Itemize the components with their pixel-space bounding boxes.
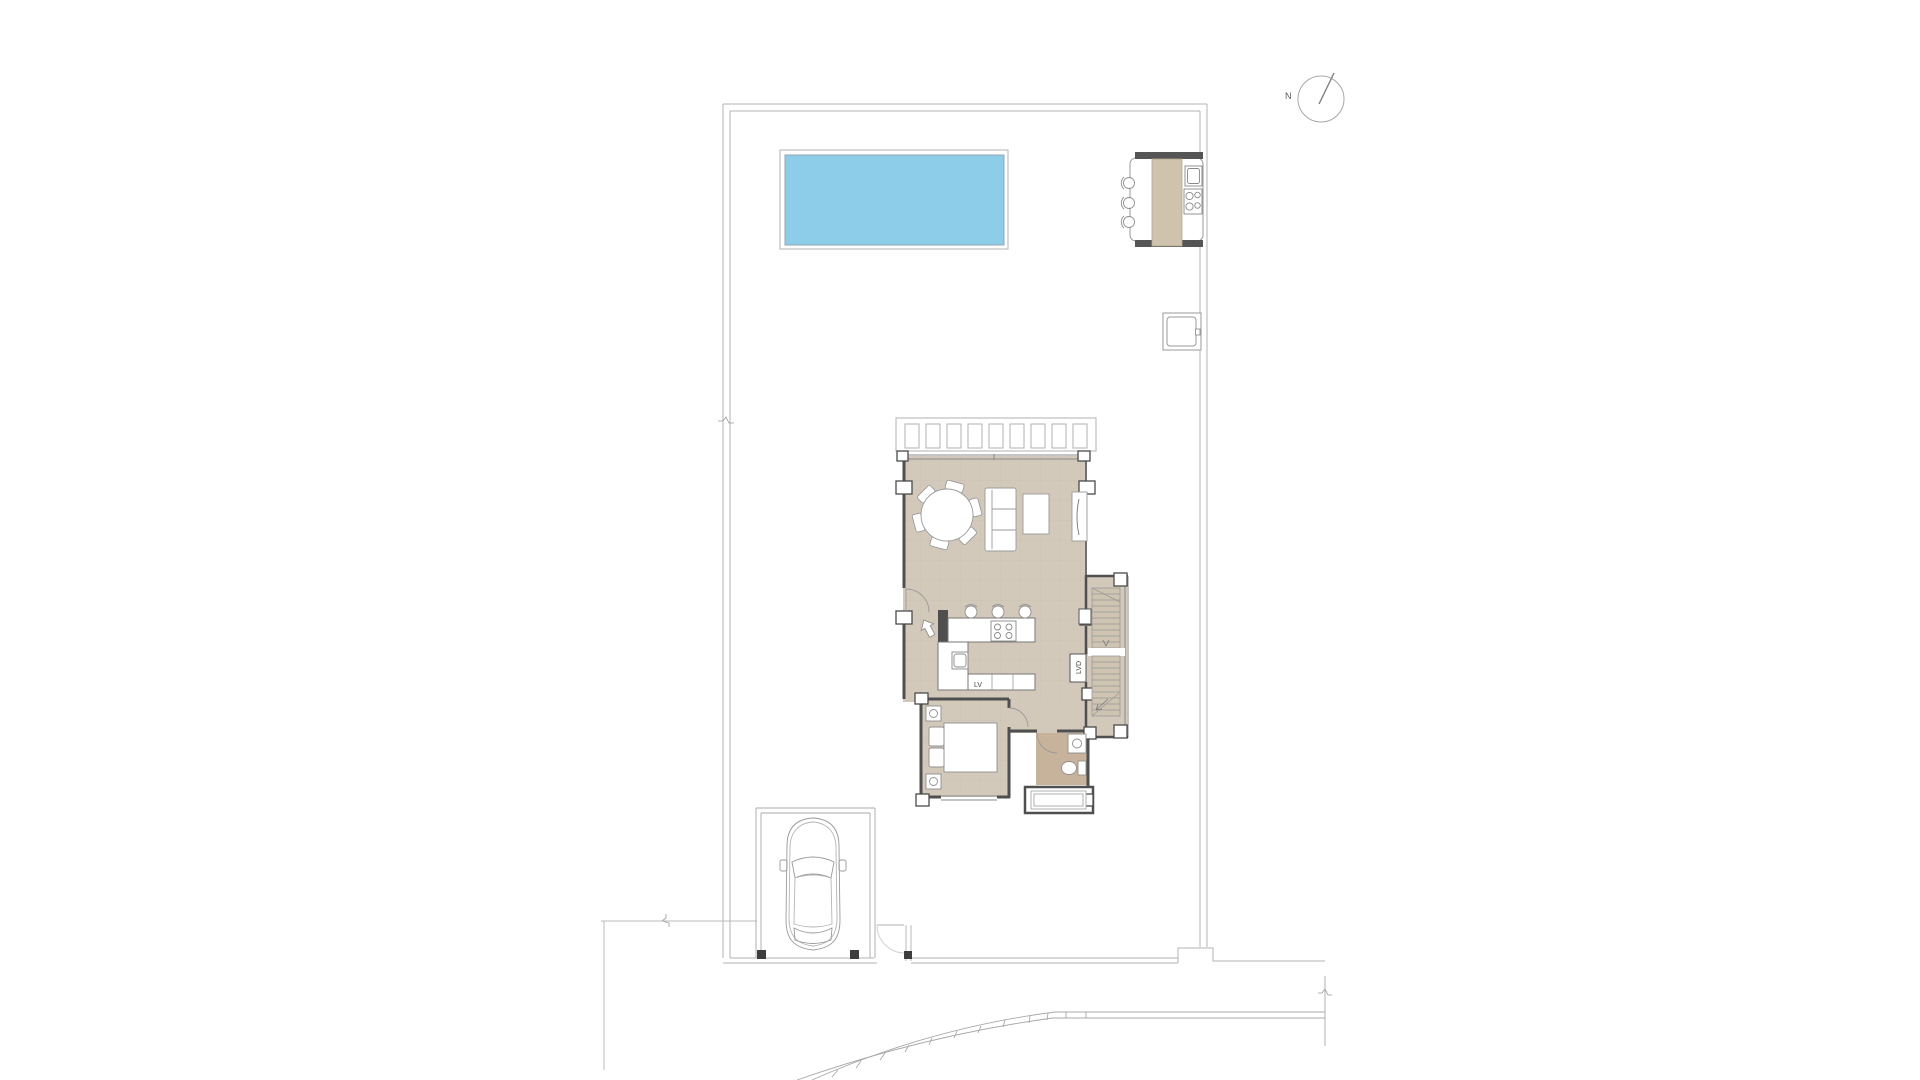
- bbq-stool-icons: [1121, 177, 1134, 228]
- gate-post: [904, 951, 912, 959]
- outdoor-kitchen: [1121, 152, 1203, 247]
- kitchen-wall-stub: [938, 610, 948, 642]
- sofa-icon: [985, 488, 1016, 551]
- outdoor-sink-icon: [1185, 166, 1202, 186]
- north-arrow-compass-icon: N: [1285, 73, 1344, 122]
- outdoor-counter: [1152, 159, 1182, 246]
- road-curb: [797, 976, 1325, 1080]
- dishwasher-label: LV: [974, 682, 982, 689]
- outdoor-kitchen-wall-top: [1135, 152, 1203, 159]
- stair-flight-upper: [1092, 588, 1120, 648]
- compass-north-label: N: [1285, 91, 1292, 101]
- duct-box: [1079, 609, 1091, 624]
- car-icon: [780, 818, 846, 950]
- pedestrian-gate: [877, 925, 912, 961]
- site-reference-lines: [601, 921, 757, 1070]
- pergola: [896, 418, 1096, 451]
- pergola-slats: [905, 424, 1087, 448]
- washer: LVD: [1070, 654, 1086, 682]
- dishwasher: LV: [968, 674, 1035, 690]
- washer-label: LVD: [1076, 661, 1083, 674]
- nightstand-icon: [926, 774, 941, 789]
- washbasin-icon: [1068, 734, 1086, 753]
- pool-water: [785, 155, 1004, 245]
- coffee-table-icon: [1023, 494, 1049, 534]
- equipment-box: [1163, 313, 1201, 350]
- nightstand-icon: [926, 706, 941, 721]
- floor-plan-drawing: N: [0, 0, 1920, 1080]
- parking-bay: [756, 808, 875, 958]
- cooktop-icon: [991, 621, 1016, 641]
- equipment-box-latch: [1196, 329, 1201, 335]
- outdoor-cooktop-icon: [1184, 189, 1202, 214]
- toilet-icon: [1062, 761, 1087, 775]
- shower-icon: [1031, 791, 1086, 809]
- site-plan-canvas: N: [0, 0, 1920, 1080]
- tv-unit-icon: [1072, 492, 1087, 541]
- swimming-pool: [780, 150, 1008, 249]
- kitchen-sink-icon: [952, 652, 968, 669]
- stair-flight-lower: [1092, 656, 1120, 716]
